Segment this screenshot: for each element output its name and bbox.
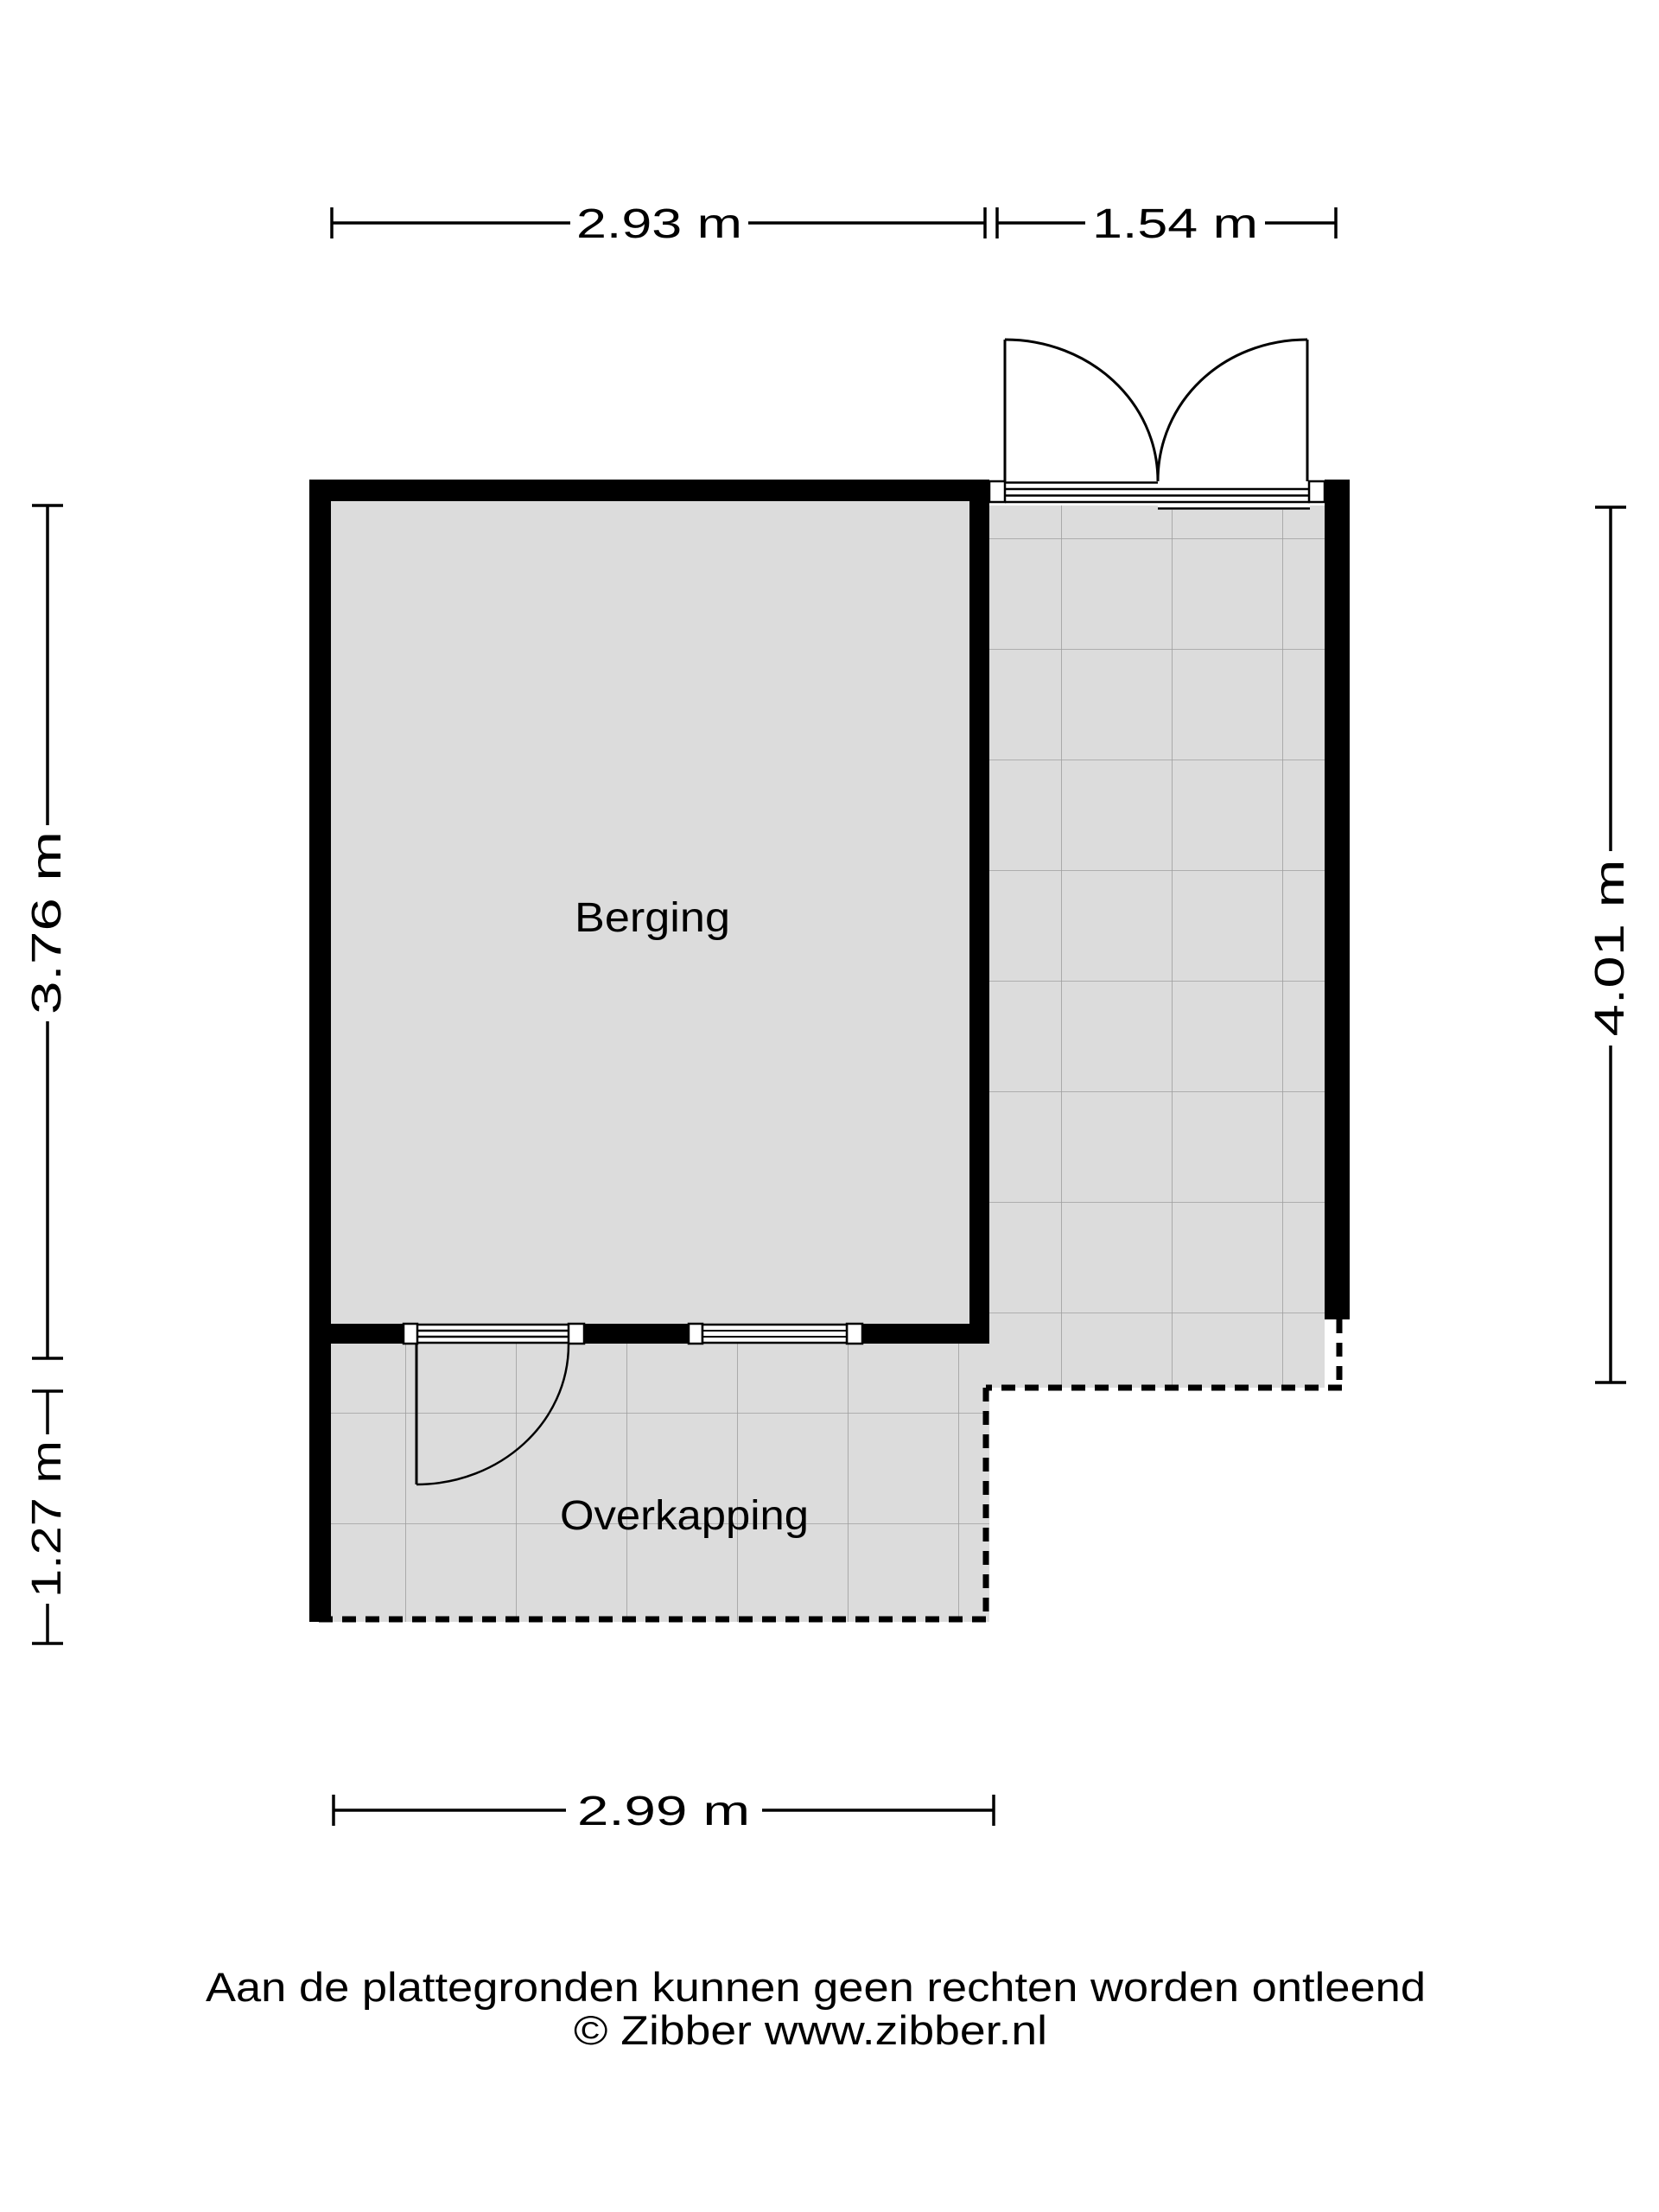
window-jamb-right — [847, 1324, 862, 1344]
window-jamb-left — [689, 1324, 702, 1344]
footer-disclaimer: Aan de plattegronden kunnen geen rechten… — [206, 1964, 1426, 2010]
double-door — [989, 340, 1325, 510]
dim-label-top-berging: 2.93 m — [576, 201, 742, 247]
single-door-threshold-bg — [417, 1324, 569, 1344]
wall-top — [309, 480, 989, 501]
door-jamb-left — [989, 481, 1005, 502]
dim-label-right-terrace: 4.01 m — [1587, 860, 1633, 1037]
dim-label-left-berging: 3.76 m — [24, 831, 70, 1014]
dim-label-top-terrace: 1.54 m — [1092, 201, 1258, 247]
wall-bottom-segment-b — [584, 1324, 689, 1344]
wall-bottom-segment-c — [862, 1324, 989, 1344]
dim-label-left-overkapping: 1.27 m — [24, 1440, 70, 1598]
door-swing-arc-left — [1005, 340, 1158, 481]
wall-right-berging — [969, 480, 989, 1344]
terrace-tile-grid — [989, 505, 1325, 1388]
window-frame — [702, 1325, 847, 1343]
single-door-jamb-right — [569, 1324, 584, 1344]
door-jamb-right — [1309, 481, 1325, 502]
room-label-overkapping: Overkapping — [560, 1493, 809, 1539]
door-swing-arc-right — [1158, 340, 1307, 481]
dim-label-bottom-overkapping: 2.99 m — [577, 1789, 750, 1834]
window — [689, 1324, 862, 1344]
floor-areas — [331, 501, 1325, 1622]
wall-bottom-segment-a — [331, 1324, 404, 1344]
footer-copyright: © Zibber www.zibber.nl — [574, 2007, 1047, 2053]
overkapping-tile-grid — [331, 1344, 989, 1622]
floorplan-drawing: 2.93 m 1.54 m 3.76 m 1.27 m 4.01 m 2.99 … — [0, 0, 1659, 2212]
wall-right-terrace — [1325, 480, 1350, 1319]
wall-left — [309, 480, 331, 1622]
floorplan-page: 2.93 m 1.54 m 3.76 m 1.27 m 4.01 m 2.99 … — [0, 0, 1659, 2212]
door-threshold-left-bg — [1005, 481, 1158, 504]
room-label-berging: Berging — [575, 895, 730, 941]
single-door-jamb-left — [404, 1324, 417, 1344]
